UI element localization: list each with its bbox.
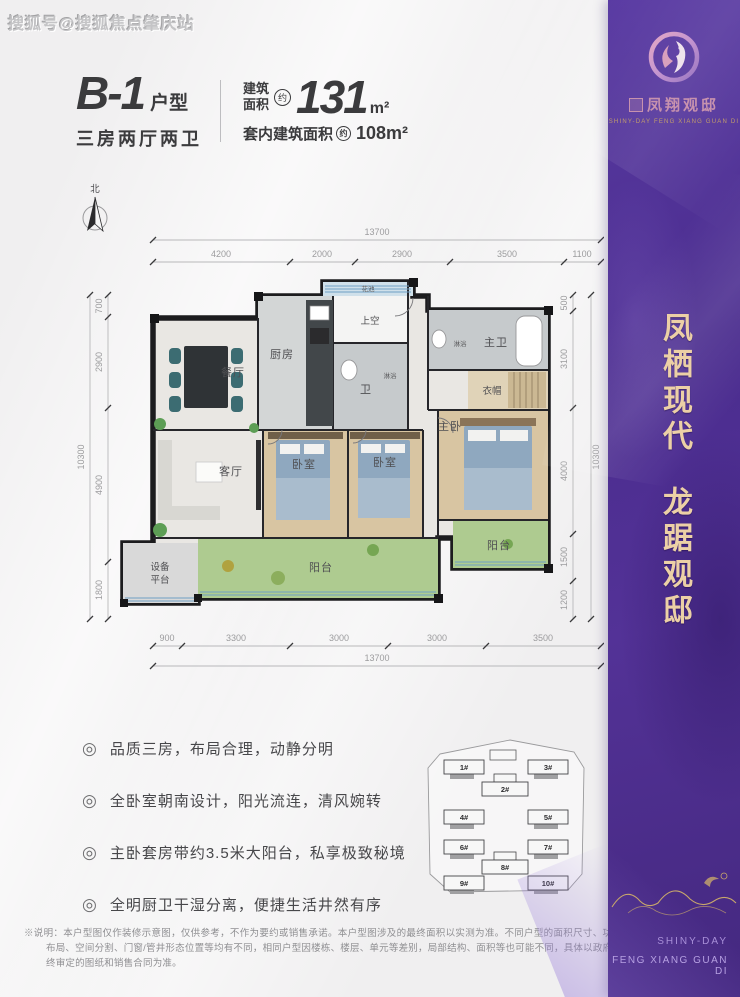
room-label-shower: 淋浴 [454,339,468,348]
band-footer: SHINY-DAY FENG XIANG GUAN DI [608,936,728,977]
svg-text:3#: 3# [544,763,553,772]
svg-text:10300: 10300 [76,444,86,469]
svg-text:9#: 9# [460,879,469,888]
svg-text:3000: 3000 [427,633,447,643]
band-footer-line: SHINY-DAY [608,936,728,947]
svg-text:10300: 10300 [591,444,601,469]
room-label-living: 客厅 [219,464,243,478]
svg-text:1200: 1200 [559,590,569,610]
svg-text:3500: 3500 [497,249,517,259]
room-label-master-bath: 主卫 [484,336,508,349]
room-label-balcony: 阳台 [309,560,333,574]
svg-text:8#: 8# [501,863,510,872]
room-label-cloak: 衣帽 [482,385,501,397]
svg-text:10#: 10# [542,879,555,888]
unit-layout: 三房两厅两卫 [76,125,202,151]
room-label-master-bedroom: 主卧 [438,420,462,433]
svg-text:4#: 4# [460,813,469,822]
svg-text:2900: 2900 [392,249,412,259]
svg-text:2000: 2000 [312,249,332,259]
inner-area-value: 108m² [356,123,408,144]
floor-plan: 北 13700 4200 2000 2900 3500 1100 [68,178,604,678]
brand-tagline: SHINY-DAY FENG XIANG GUAN DI [608,119,740,125]
brand-logo-block: 凤翔观邸 SHINY-DAY FENG XIANG GUAN DI [608,28,740,125]
unit-type-suffix: 户型 [150,88,188,115]
room-label-shower: 淋浴 [384,371,398,380]
svg-text:4000: 4000 [559,461,569,481]
area-unit: m² [370,100,390,118]
svg-text:6#: 6# [460,843,469,852]
approx-badge: 约 [336,126,351,141]
svg-text:3300: 3300 [226,633,246,643]
inner-area-label: 套内建筑面积 [243,123,333,144]
feature-item: ◎ 主卧套房带约3.5米大阳台，私享极致秘境 [82,842,406,863]
svg-text:3100: 3100 [559,349,569,369]
svg-text:1500: 1500 [559,547,569,567]
room-label-master-balcony: 阳台 [487,538,511,552]
svg-text:1800: 1800 [94,580,104,600]
svg-text:900: 900 [159,633,174,643]
svg-text:500: 500 [559,295,569,310]
room-label-dining: 餐厅 [221,365,245,379]
room-label-bath: 卫 [360,384,372,396]
area-label: 建筑 面积 [243,81,269,114]
feature-text: 主卧套房带约3.5米大阳台，私享极致秘境 [110,842,406,863]
svg-text:13700: 13700 [364,653,389,663]
approx-badge: 约 [274,89,291,106]
brand-band: 凤翔观邸 SHINY-DAY FENG XIANG GUAN DI 凤栖现代 龙… [608,0,740,997]
svg-text:1100: 1100 [572,249,591,259]
room-label-bedroom: 卧室 [373,455,397,469]
svg-text:2#: 2# [501,785,510,794]
ring-bullet-icon: ◎ [82,844,98,861]
feature-text: 全明厨卫干湿分离，便捷生活井然有序 [110,894,382,915]
header-divider [220,80,221,142]
disclaimer: ※说明：本户型图仅作装修示意图，仅供参考，不作为要约或销售承诺。本户型图涉及的最… [24,926,622,972]
svg-text:7#: 7# [544,843,553,852]
svg-text:3500: 3500 [533,633,553,643]
room-label-equipment: 平台 [150,574,169,586]
room-label-kitchen: 厨房 [270,348,294,361]
site-key-plan: 1# 3# 2# 4# 5# 6# [412,726,602,921]
svg-text:4200: 4200 [211,249,231,259]
room-label-void: 上空 [360,315,379,327]
band-footer-line: FENG XIANG GUAN DI [608,955,728,977]
brand-seal-icon [629,98,643,112]
ring-bullet-icon: ◎ [82,740,98,757]
vertical-slogan: 凤栖现代 龙踞观邸 [608,312,740,630]
room-label-bedroom: 卧室 [292,457,316,471]
unit-title-block: B-1 户型 三房两厅两卫 [76,70,202,151]
area-value: 131 [296,77,367,118]
svg-text:3000: 3000 [329,633,349,643]
ring-bullet-icon: ◎ [82,792,98,809]
feature-item: ◎ 品质三房，布局合理，动静分明 [82,738,406,759]
area-block: 建筑 面积 约 131 m² 套内建筑面积 约 108m² [243,77,408,144]
brand-name-row: 凤翔观邸 [608,94,740,115]
room-label-flower: 花池 [362,284,376,293]
slogan-line: 龙踞观邸 [652,486,696,630]
svg-text:700: 700 [94,298,104,313]
svg-text:13700: 13700 [364,227,389,237]
svg-text:2900: 2900 [94,352,104,372]
watermark: 搜狐号@搜狐焦点肇庆站 [8,10,195,34]
north-label: 北 [90,184,100,195]
room-label-equipment: 设备 [150,561,170,573]
mountain-art-icon [608,855,740,925]
svg-text:5#: 5# [544,813,553,822]
feature-item: ◎ 全明厨卫干湿分离，便捷生活井然有序 [82,894,406,915]
poster-page: 搜狐号@搜狐焦点肇庆站 B-1 户型 三房两厅两卫 建筑 面积 约 131 m²… [0,0,740,997]
phoenix-emblem-icon [645,28,703,86]
feature-list: ◎ 品质三房，布局合理，动静分明 ◎ 全卧室朝南设计，阳光流连，清风婉转 ◎ 主… [82,738,406,946]
slogan-line: 凤栖现代 [652,312,696,456]
svg-text:4900: 4900 [94,475,104,495]
svg-text:1#: 1# [460,763,469,772]
north-arrow-icon: 北 [83,184,107,231]
unit-header: B-1 户型 三房两厅两卫 建筑 面积 约 131 m² 套内建筑面积 约 10… [76,70,408,151]
ring-bullet-icon: ◎ [82,896,98,913]
brand-name: 凤翔观邸 [647,94,719,115]
feature-text: 品质三房，布局合理，动静分明 [110,738,334,759]
feature-text: 全卧室朝南设计，阳光流连，清风婉转 [110,790,382,811]
unit-code: B-1 [76,70,144,116]
feature-item: ◎ 全卧室朝南设计，阳光流连，清风婉转 [82,790,406,811]
